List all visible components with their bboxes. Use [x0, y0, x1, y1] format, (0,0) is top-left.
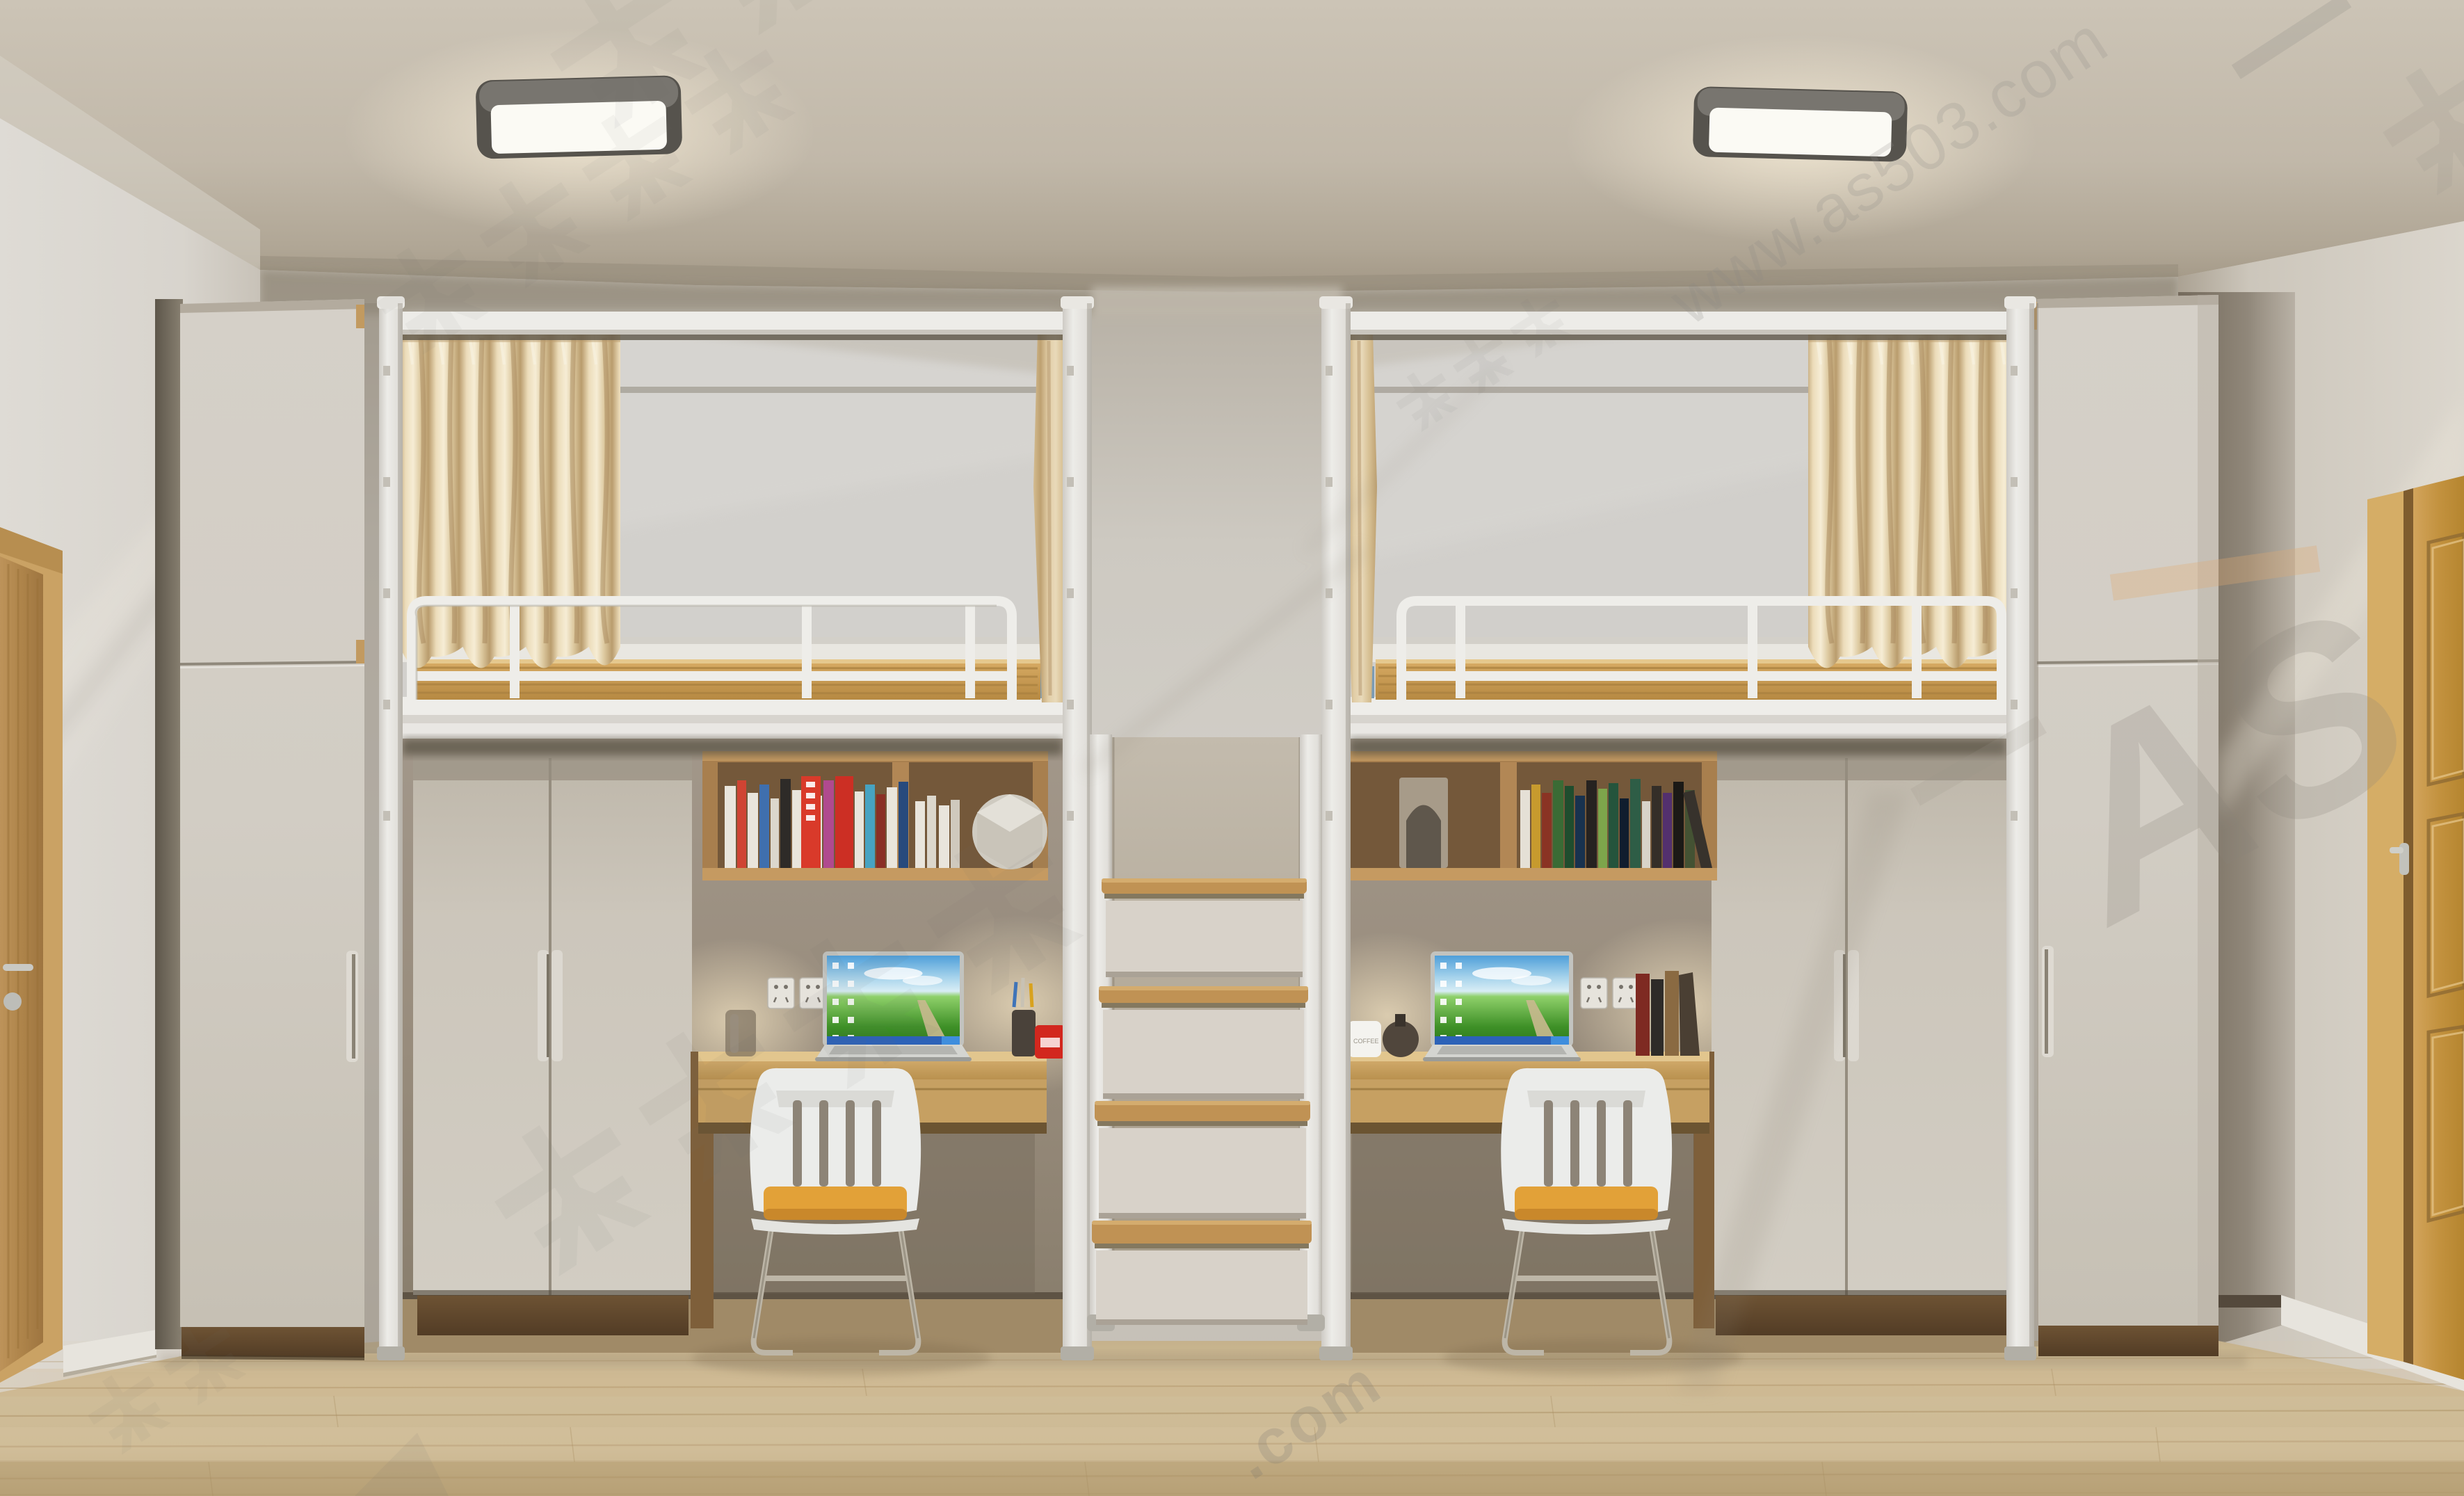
svg-text:COFFEE: COFFEE [1353, 1038, 1379, 1045]
